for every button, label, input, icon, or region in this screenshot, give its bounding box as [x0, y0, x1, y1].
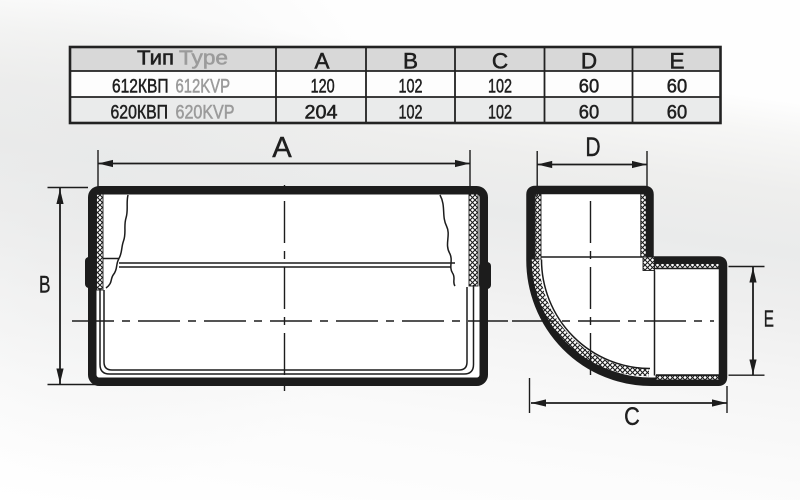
svg-text:102: 102 — [488, 76, 512, 98]
svg-text:204: 204 — [305, 102, 338, 124]
svg-text:102: 102 — [399, 76, 423, 98]
svg-text:C: C — [492, 49, 508, 74]
svg-text:A: A — [314, 49, 329, 74]
svg-text:D: D — [581, 49, 597, 74]
svg-text:Тип: Тип — [137, 48, 174, 70]
svg-text:620КВП: 620КВП — [111, 102, 169, 124]
svg-text:120: 120 — [311, 76, 335, 98]
svg-text:E: E — [764, 306, 774, 332]
svg-text:60: 60 — [667, 102, 688, 124]
svg-text:102: 102 — [399, 102, 423, 124]
svg-text:612КВП: 612КВП — [112, 76, 169, 98]
svg-text:60: 60 — [579, 76, 600, 98]
svg-text:612KVP: 612KVP — [176, 76, 231, 98]
svg-text:B: B — [39, 272, 51, 299]
svg-text:60: 60 — [579, 102, 600, 124]
svg-text:102: 102 — [488, 102, 512, 124]
svg-text:E: E — [669, 49, 684, 74]
svg-text:D: D — [585, 132, 600, 162]
svg-text:Type: Type — [179, 48, 228, 70]
svg-text:C: C — [624, 403, 640, 431]
svg-text:B: B — [403, 49, 418, 74]
svg-text:A: A — [272, 132, 292, 164]
svg-text:60: 60 — [667, 76, 688, 98]
svg-text:620KVP: 620KVP — [176, 102, 235, 124]
